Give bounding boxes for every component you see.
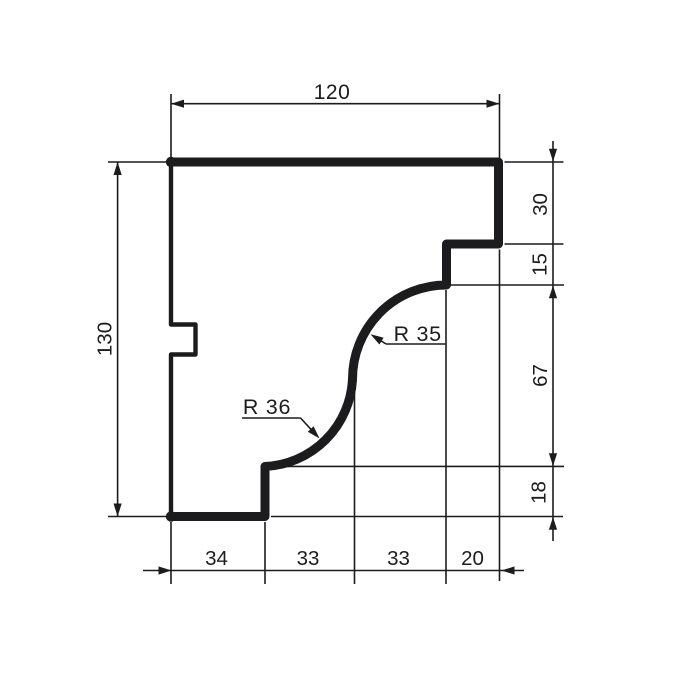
svg-text:33: 33 bbox=[297, 547, 320, 570]
svg-text:33: 33 bbox=[387, 547, 410, 570]
svg-text:67: 67 bbox=[529, 364, 552, 387]
svg-text:34: 34 bbox=[205, 547, 228, 570]
svg-text:18: 18 bbox=[528, 481, 551, 504]
svg-text:15: 15 bbox=[529, 253, 552, 276]
svg-text:R 35: R 35 bbox=[394, 322, 442, 346]
svg-text:130: 130 bbox=[94, 322, 117, 356]
svg-text:120: 120 bbox=[314, 81, 351, 104]
svg-text:30: 30 bbox=[529, 193, 552, 216]
svg-text:R 36: R 36 bbox=[243, 395, 291, 419]
svg-text:20: 20 bbox=[461, 547, 484, 570]
